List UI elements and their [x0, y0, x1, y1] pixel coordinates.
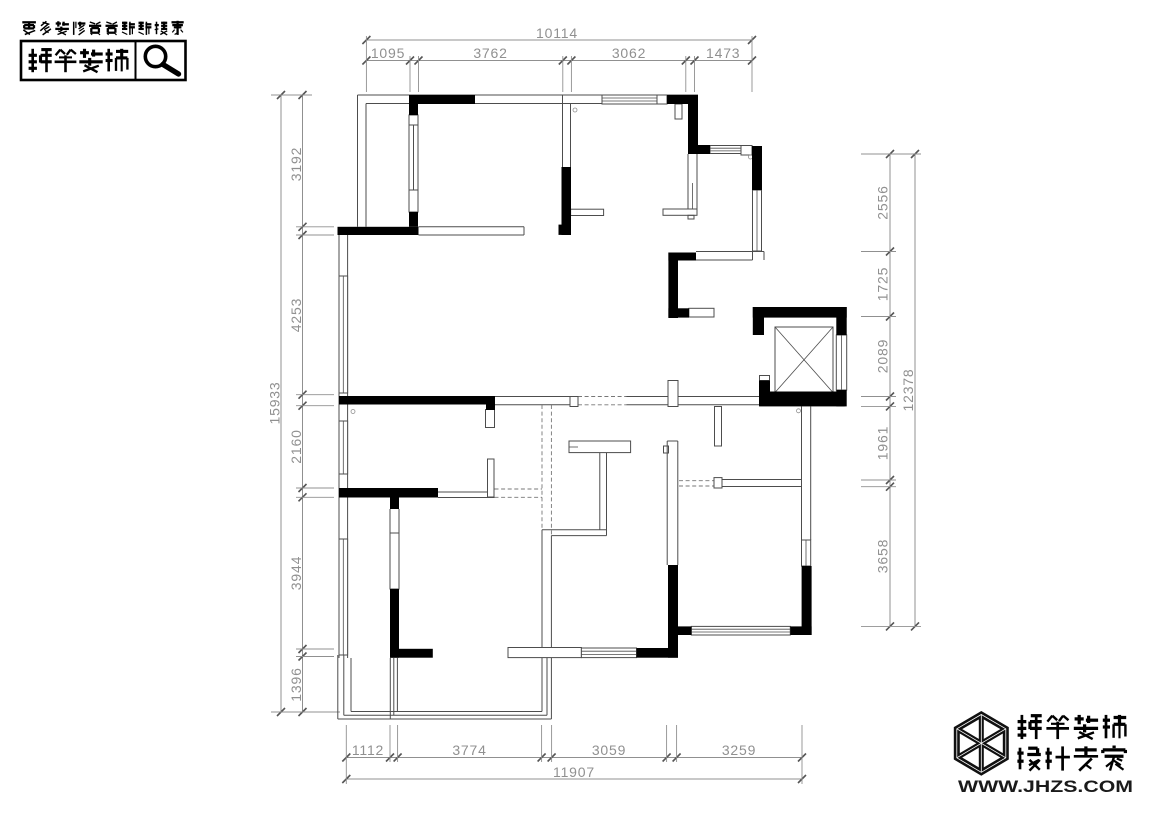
svg-text:3944: 3944 [288, 556, 304, 590]
svg-text:2160: 2160 [288, 429, 304, 463]
svg-text:1396: 1396 [288, 667, 304, 701]
svg-text:4253: 4253 [288, 298, 304, 332]
svg-text:1725: 1725 [875, 267, 891, 301]
svg-text:3658: 3658 [875, 539, 891, 573]
svg-text:3259: 3259 [722, 742, 756, 758]
svg-text:2089: 2089 [875, 339, 891, 373]
svg-text:3062: 3062 [612, 45, 646, 61]
svg-text:12378: 12378 [900, 369, 916, 412]
svg-text:3774: 3774 [452, 742, 486, 758]
svg-text:1473: 1473 [706, 45, 740, 61]
svg-text:2556: 2556 [875, 185, 891, 219]
svg-text:WWW.JHZS.COM: WWW.JHZS.COM [958, 777, 1133, 796]
svg-text:1095: 1095 [371, 45, 405, 61]
svg-text:3192: 3192 [288, 147, 304, 181]
svg-text:1112: 1112 [352, 742, 384, 758]
svg-text:11907: 11907 [553, 764, 595, 780]
svg-text:3059: 3059 [592, 742, 626, 758]
svg-text:10114: 10114 [536, 25, 578, 41]
svg-text:1961: 1961 [875, 426, 891, 460]
svg-text:3762: 3762 [473, 45, 507, 61]
svg-text:15933: 15933 [267, 382, 283, 425]
